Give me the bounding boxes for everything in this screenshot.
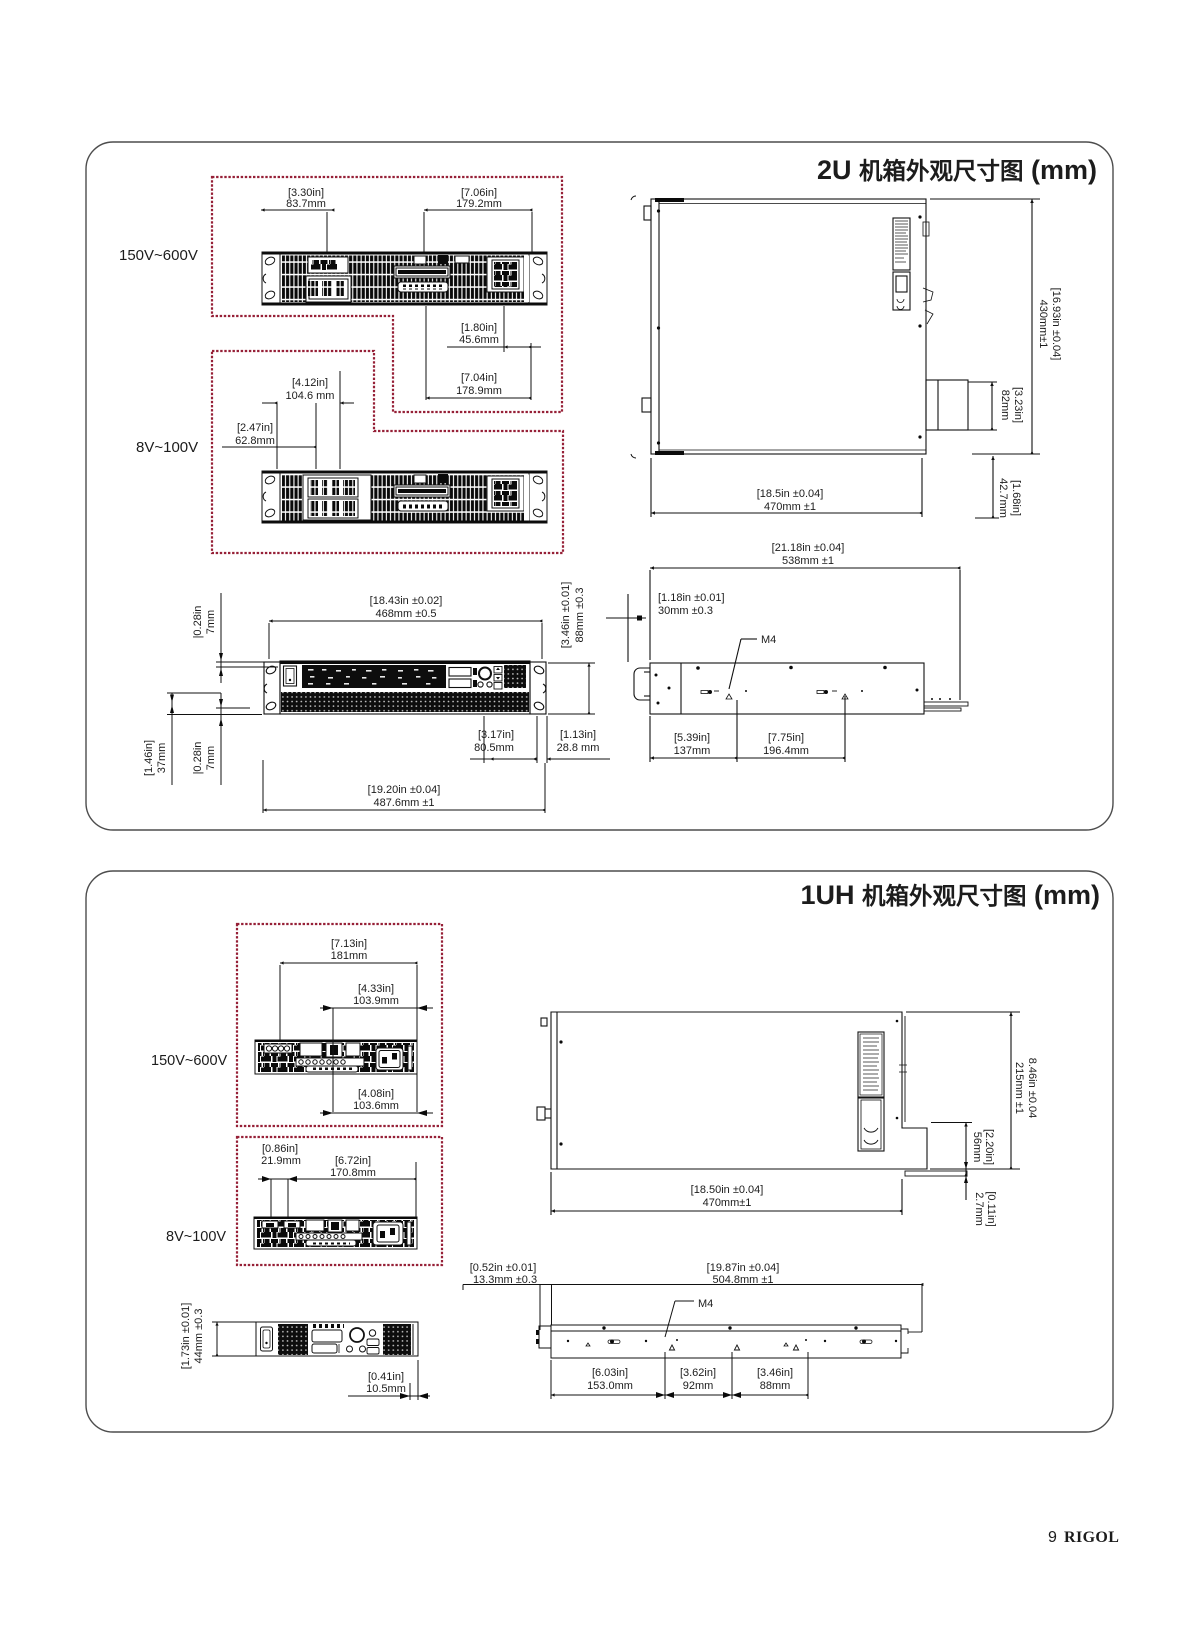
svg-text:80.5mm: 80.5mm <box>474 742 514 754</box>
svg-text:487.6mm ±1: 487.6mm ±1 <box>373 797 434 809</box>
svg-text:62.8mm: 62.8mm <box>235 435 275 447</box>
svg-text:37mm: 37mm <box>156 743 168 774</box>
svg-text:196.4mm: 196.4mm <box>763 745 809 757</box>
svg-text:[3.17in]: [3.17in] <box>478 729 514 741</box>
svg-text:RIGOL: RIGOL <box>1064 1529 1119 1546</box>
svg-text:8V~100V: 8V~100V <box>136 439 198 456</box>
svg-text:|0.28in: |0.28in <box>192 742 204 775</box>
svg-text:M4: M4 <box>761 634 776 646</box>
svg-text:45.6mm: 45.6mm <box>459 334 499 346</box>
svg-text:|0.28in: |0.28in <box>192 606 204 639</box>
svg-text:179.2mm: 179.2mm <box>456 198 502 210</box>
svg-text:170.8mm: 170.8mm <box>330 1167 376 1179</box>
svg-text:88mm ±0.3: 88mm ±0.3 <box>574 588 586 643</box>
svg-text:[21.18in ±0.04]: [21.18in ±0.04] <box>772 542 845 554</box>
svg-text:9: 9 <box>1048 1529 1057 1546</box>
svg-text:[19.20in ±0.04]: [19.20in ±0.04] <box>368 784 441 796</box>
svg-text:[2.47in]: [2.47in] <box>237 422 273 434</box>
svg-text:[7.04in]: [7.04in] <box>461 372 497 384</box>
svg-text:88mm: 88mm <box>760 1380 791 1392</box>
svg-text:137mm: 137mm <box>674 745 711 757</box>
svg-text:10.5mm: 10.5mm <box>366 1383 406 1395</box>
svg-text:[1.46in]: [1.46in] <box>143 740 155 776</box>
svg-text:181mm: 181mm <box>331 950 368 962</box>
svg-text:[7.13in]: [7.13in] <box>331 938 367 950</box>
svg-text:178.9mm: 178.9mm <box>456 385 502 397</box>
svg-text:[1.73in ±0.01]: [1.73in ±0.01] <box>180 1303 192 1370</box>
svg-text:8V~100V: 8V~100V <box>166 1229 226 1245</box>
svg-text:2.7mm: 2.7mm <box>973 1192 985 1226</box>
svg-text:[19.87in ±0.04]: [19.87in ±0.04] <box>707 1262 780 1274</box>
svg-text:[3.62in]: [3.62in] <box>680 1367 716 1379</box>
svg-text:[3.23in]: [3.23in] <box>1012 387 1024 423</box>
svg-text:215mm ±1: 215mm ±1 <box>1013 1062 1025 1114</box>
svg-text:[4.33in]: [4.33in] <box>358 983 394 995</box>
svg-text:8.46in ±0.04: 8.46in ±0.04 <box>1026 1058 1038 1118</box>
svg-text:[2.20in]: [2.20in] <box>983 1129 995 1165</box>
svg-text:92mm: 92mm <box>683 1380 714 1392</box>
svg-text:[1.68in]: [1.68in] <box>1010 480 1022 516</box>
svg-text:[1.13in]: [1.13in] <box>560 729 596 741</box>
svg-text:468mm ±0.5: 468mm ±0.5 <box>375 608 436 620</box>
svg-text:42.7mm: 42.7mm <box>997 478 1009 518</box>
svg-text:[5.39in]: [5.39in] <box>674 732 710 744</box>
svg-text:538mm ±1: 538mm ±1 <box>782 555 834 567</box>
svg-text:[18.5in ±0.04]: [18.5in ±0.04] <box>757 488 824 500</box>
svg-text:2U 机箱外观尺寸图 (mm): 2U 机箱外观尺寸图 (mm) <box>817 155 1097 185</box>
svg-text:[1.80in]: [1.80in] <box>461 322 497 334</box>
svg-text:44mm ±0.3: 44mm ±0.3 <box>193 1309 205 1364</box>
svg-text:83.7mm: 83.7mm <box>286 198 326 210</box>
svg-text:103.6mm: 103.6mm <box>353 1100 399 1112</box>
svg-text:150V~600V: 150V~600V <box>119 247 198 264</box>
svg-text:21.9mm: 21.9mm <box>261 1155 301 1167</box>
svg-text:153.0mm: 153.0mm <box>587 1380 633 1392</box>
svg-text:150V~600V: 150V~600V <box>151 1053 228 1069</box>
svg-text:30mm ±0.3: 30mm ±0.3 <box>658 605 713 617</box>
svg-text:7mm: 7mm <box>205 610 217 634</box>
svg-text:28.8 mm: 28.8 mm <box>557 742 600 754</box>
svg-text:[7.75in]: [7.75in] <box>768 732 804 744</box>
svg-text:7mm: 7mm <box>205 746 217 770</box>
svg-text:M4: M4 <box>698 1298 713 1310</box>
svg-text:[6.03in]: [6.03in] <box>592 1367 628 1379</box>
svg-text:[4.12in]: [4.12in] <box>292 377 328 389</box>
svg-text:[3.46in ±0.01]: [3.46in ±0.01] <box>560 582 572 649</box>
svg-text:[0.86in]: [0.86in] <box>262 1143 298 1155</box>
svg-text:[6.72in]: [6.72in] <box>335 1155 371 1167</box>
svg-text:56mm: 56mm <box>971 1132 983 1163</box>
svg-text:104.6 mm: 104.6 mm <box>286 390 335 402</box>
svg-text:470mm ±1: 470mm ±1 <box>764 501 816 513</box>
svg-text:[1.18in ±0.01]: [1.18in ±0.01] <box>658 592 725 604</box>
svg-text:1UH 机箱外观尺寸图 (mm): 1UH 机箱外观尺寸图 (mm) <box>800 880 1100 910</box>
svg-text:[18.50in ±0.04]: [18.50in ±0.04] <box>691 1184 764 1196</box>
svg-text:[16.93in ±0.04]: [16.93in ±0.04] <box>1050 288 1062 361</box>
svg-text:[4.08in]: [4.08in] <box>358 1088 394 1100</box>
svg-text:[0.41in]: [0.41in] <box>368 1371 404 1383</box>
svg-text:103.9mm: 103.9mm <box>353 995 399 1007</box>
svg-text:[18.43in ±0.02]: [18.43in ±0.02] <box>370 595 443 607</box>
svg-text:430mm±1: 430mm±1 <box>1037 300 1049 349</box>
svg-text:82mm: 82mm <box>999 390 1011 421</box>
svg-text:470mm±1: 470mm±1 <box>703 1197 752 1209</box>
svg-text:[3.46in]: [3.46in] <box>757 1367 793 1379</box>
svg-text:[0.52in ±0.01]: [0.52in ±0.01] <box>470 1262 537 1274</box>
svg-text:[0.11in]: [0.11in] <box>985 1191 997 1226</box>
